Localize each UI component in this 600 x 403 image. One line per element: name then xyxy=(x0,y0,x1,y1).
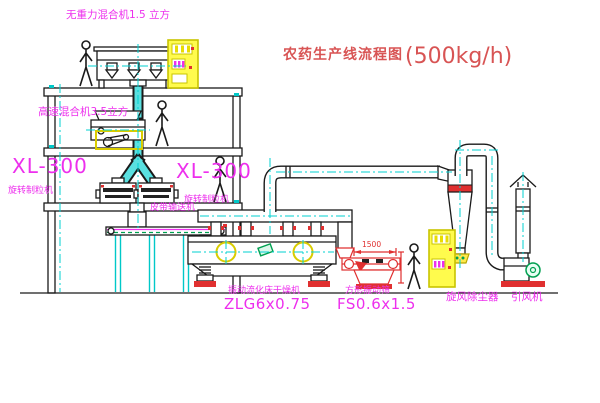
granulator-discharge-chute xyxy=(130,203,144,212)
label-high-speed-mixer: 高速混合机3.5立方 xyxy=(38,107,128,118)
granulator-right-drawing xyxy=(134,178,178,203)
title-text: 农药生产线流程图 xyxy=(283,47,403,63)
label-dryer-model: ZLG6x0.75 xyxy=(224,297,311,313)
label-belt-conveyor: 皮带输送机 xyxy=(150,204,195,213)
title-capacity: (500kg/h) xyxy=(405,44,512,69)
person-figure xyxy=(80,41,92,86)
cad-flow-diagram: 无重力混合机1.5 立方 农药生产线流程图(500kg/h) 高速混合机3.5立… xyxy=(0,0,600,403)
label-granulator-left-model: XL-300 xyxy=(12,156,88,177)
label-granulator-right-model: XL-300 xyxy=(176,161,252,182)
granulator-discharge-chute xyxy=(128,212,146,227)
label-granulator-left-name: 旋转制粒机 xyxy=(8,187,53,196)
page-title: 农药生产线流程图(500kg/h) xyxy=(283,44,512,69)
label-screen-model: FS0.6x1.5 xyxy=(337,297,416,313)
dimension-screen-length: 1500 xyxy=(362,241,381,249)
person-figure xyxy=(156,101,168,146)
label-gravity-mixer: 无重力混合机1.5 立方 xyxy=(66,10,170,21)
label-fan: 引风机 xyxy=(511,292,543,303)
control-cabinet-top xyxy=(168,40,198,88)
label-cyclone: 旋风除尘器 xyxy=(446,292,499,303)
control-cabinet-right xyxy=(429,230,455,287)
person-figure xyxy=(408,244,420,289)
induced-draft-fan-drawing xyxy=(501,258,545,287)
vibrating-screen-drawing xyxy=(336,248,404,289)
